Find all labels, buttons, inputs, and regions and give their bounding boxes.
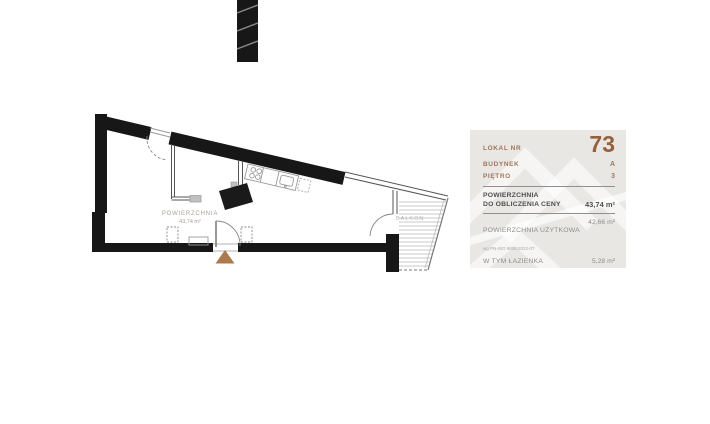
svg-text:43,74 m²: 43,74 m² — [179, 219, 201, 225]
svg-text:POWIERZCHNIA: POWIERZCHNIA — [162, 211, 218, 217]
balcony-hatch — [395, 202, 452, 266]
usable-area-value: 42,66 m² — [588, 219, 615, 226]
floor-value: 3 — [611, 173, 615, 180]
info-panel: LOKAL NR 73 BUDYNEK A PIĘTRO 3 POWIERZCH… — [470, 130, 626, 268]
kitchen-partition — [239, 160, 243, 185]
unit-label: LOKAL NR — [483, 145, 521, 152]
furniture-dashed — [167, 227, 252, 245]
top-left-door-arc — [147, 136, 167, 160]
entry-partition — [172, 144, 191, 200]
adjacent-structure-fragment — [237, 0, 258, 62]
divider — [483, 213, 615, 214]
usable-area-label: POWIERZCHNIA UŻYTKOWA wg PN-ISO 9836:202… — [483, 219, 580, 255]
kitchen-island — [219, 183, 253, 210]
entrance-triangle-icon — [216, 250, 235, 264]
balcony-label: BALKON — [396, 216, 424, 222]
top-left-door — [147, 128, 170, 160]
dishwasher-dashed — [297, 178, 310, 192]
entrance-door — [213, 221, 240, 251]
diagonal-wall — [97, 121, 344, 179]
price-area-label: POWIERZCHNIA DO OBLICZENIA CENY — [483, 192, 561, 209]
entrance-door-arc — [216, 221, 240, 246]
building-value: A — [610, 161, 615, 168]
bathroom-label: W TYM ŁAZIENKA — [483, 258, 543, 265]
radiator — [190, 196, 201, 203]
bathroom-door-arc — [370, 214, 393, 236]
usable-area-norm: wg PN-ISO 9836:2022-07 — [483, 246, 535, 251]
divider — [483, 186, 615, 187]
plan-area-label: POWIERZCHNIA 43,74 m² — [162, 211, 218, 225]
unit-number: 73 — [589, 134, 615, 155]
price-area-value: 43,74 m² — [585, 200, 615, 209]
building-label: BUDYNEK — [483, 161, 519, 168]
floor-label: PIĘTRO — [483, 173, 511, 180]
balcony: BALKON — [395, 198, 452, 270]
bathroom-wall — [393, 190, 397, 214]
bathroom-value: 5,28 m² — [592, 258, 615, 265]
